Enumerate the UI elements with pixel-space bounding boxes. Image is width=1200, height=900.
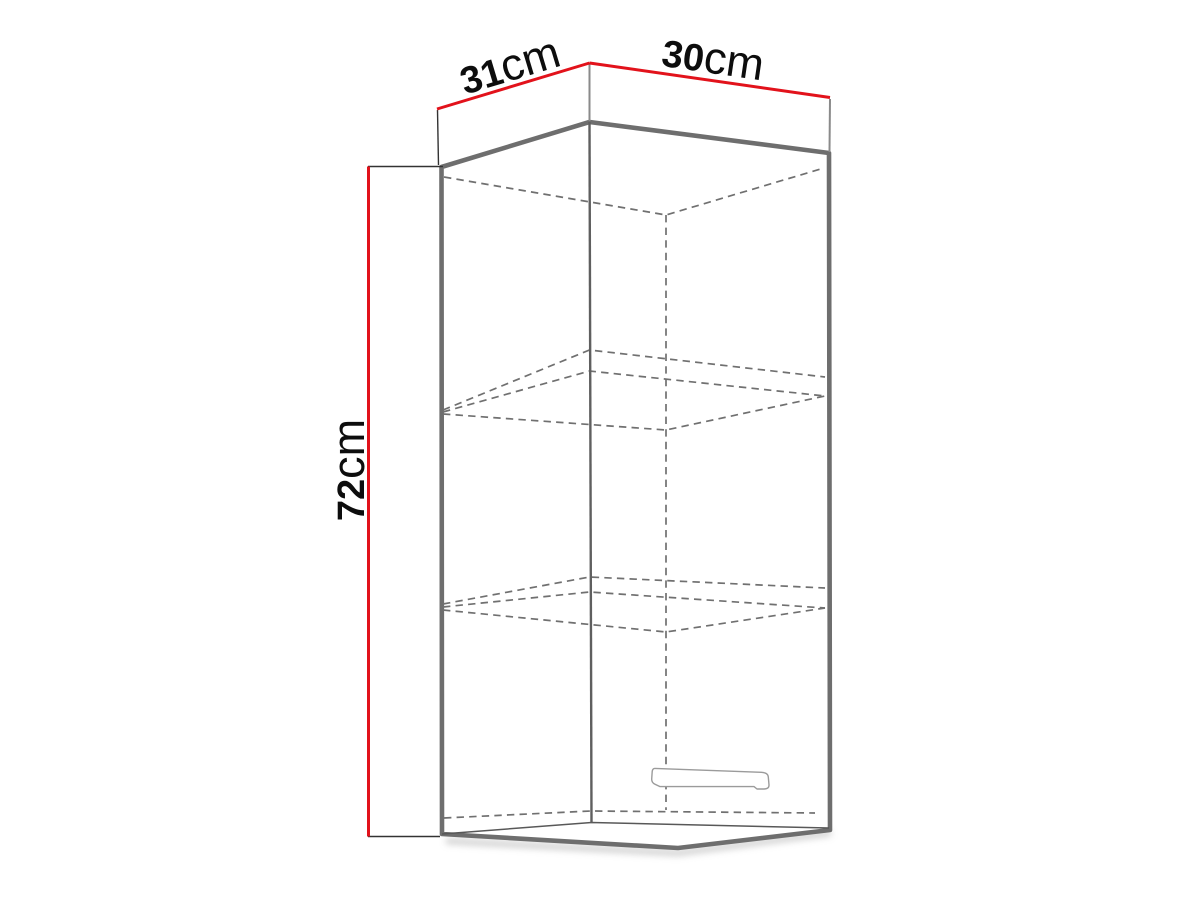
height-value: 72	[331, 479, 373, 521]
cabinet-body	[442, 122, 831, 848]
width-extension-line	[830, 99, 831, 152]
height-dimension-group: 72cm	[323, 167, 443, 837]
width-label: 30cm	[659, 25, 768, 90]
width-unit: cm	[701, 31, 768, 90]
door-handle	[652, 768, 769, 789]
depth-unit: cm	[494, 26, 566, 92]
height-unit: cm	[323, 419, 374, 479]
depth-extension-line	[438, 110, 439, 165]
depth-label: 31cm	[453, 26, 566, 104]
height-label: 72cm	[323, 419, 374, 521]
width-value: 30	[659, 33, 707, 81]
diagram-canvas: 31cm 30cm 72cm	[0, 0, 1200, 900]
cabinet-dimension-diagram: 31cm 30cm 72cm	[0, 0, 1200, 900]
